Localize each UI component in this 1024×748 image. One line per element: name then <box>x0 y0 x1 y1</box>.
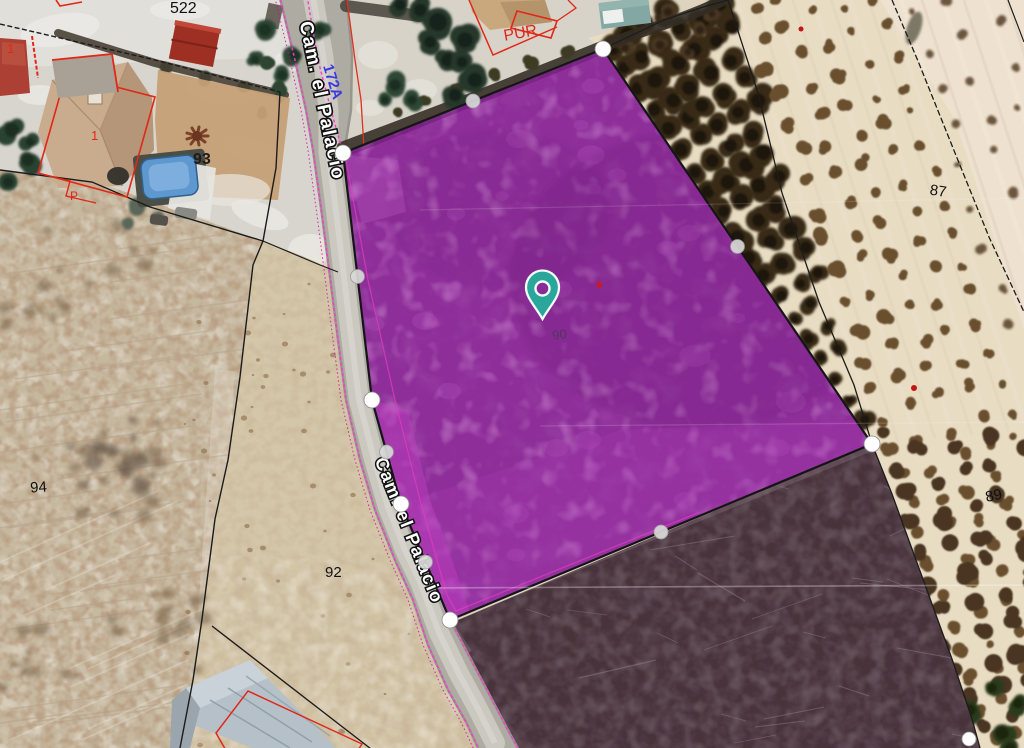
svg-text:94: 94 <box>30 479 48 497</box>
svg-text:89: 89 <box>984 486 1004 506</box>
svg-text:1: 1 <box>91 128 98 143</box>
svg-text:87: 87 <box>929 182 948 201</box>
svg-text:522: 522 <box>170 0 197 17</box>
svg-text:1: 1 <box>7 41 14 56</box>
svg-text:92: 92 <box>325 564 342 581</box>
svg-text:90: 90 <box>551 326 567 343</box>
svg-text:93: 93 <box>193 151 211 168</box>
svg-text:P: P <box>70 189 78 203</box>
